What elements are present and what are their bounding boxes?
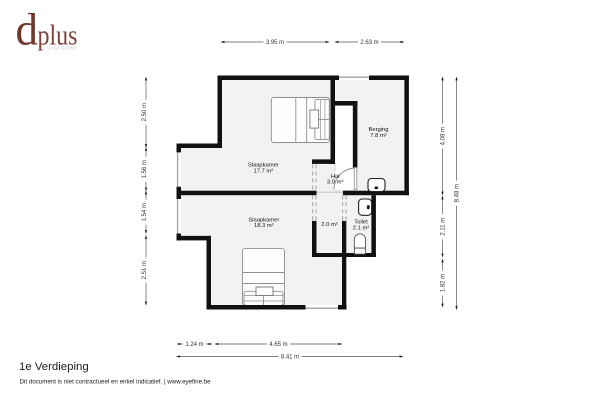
svg-text:8.41 m: 8.41 m: [281, 355, 299, 361]
svg-text:VASTGOED: VASTGOED: [47, 45, 78, 50]
svg-text:3.95 m: 3.95 m: [266, 40, 284, 46]
svg-text:1e Verdieping: 1e Verdieping: [19, 361, 89, 373]
svg-text:Dit document is niet contractu: Dit document is niet contractueel en enk…: [20, 378, 212, 385]
svg-text:17.7 m²: 17.7 m²: [253, 168, 273, 174]
svg-text:8.48 m: 8.48 m: [455, 184, 461, 202]
svg-text:1.24 m: 1.24 m: [185, 342, 203, 348]
svg-text:d: d: [16, 4, 39, 54]
svg-text:7.8 m²: 7.8 m²: [370, 133, 386, 139]
svg-text:2.11 m: 2.11 m: [441, 218, 447, 236]
svg-text:2.51 m: 2.51 m: [142, 261, 148, 279]
svg-text:2.63 m: 2.63 m: [360, 40, 378, 46]
svg-text:2.0 m²: 2.0 m²: [321, 222, 337, 228]
svg-text:3.0 m²: 3.0 m²: [327, 180, 343, 186]
svg-text:4.65 m: 4.65 m: [269, 342, 287, 348]
svg-text:1.54 m: 1.54 m: [142, 203, 148, 221]
svg-text:2.50 m: 2.50 m: [142, 103, 148, 121]
svg-text:1.82 m: 1.82 m: [441, 274, 447, 292]
svg-text:4.08 m: 4.08 m: [441, 127, 447, 145]
svg-text:1.56 m: 1.56 m: [142, 160, 148, 178]
svg-text:18.3 m²: 18.3 m²: [254, 223, 274, 229]
svg-text:2.1 m²: 2.1 m²: [353, 226, 369, 232]
